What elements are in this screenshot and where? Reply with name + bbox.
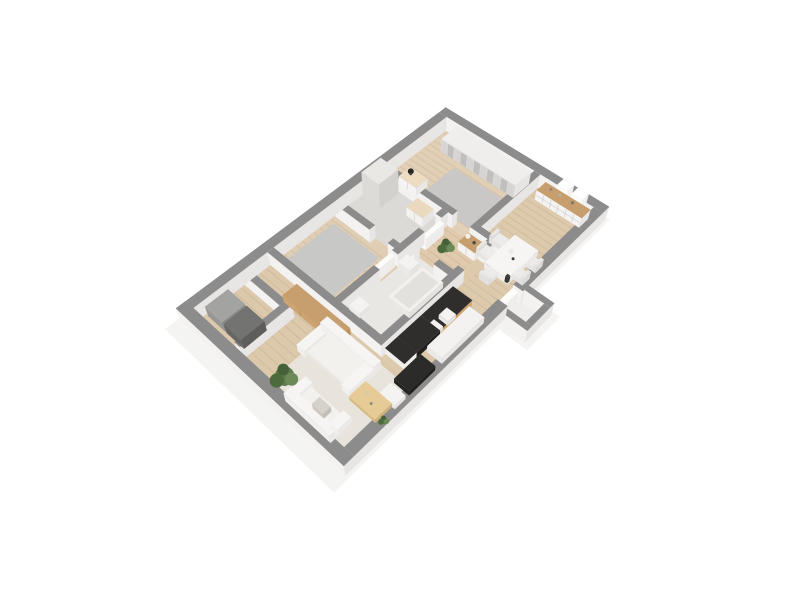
deco-coffee-table-2 [370,402,373,405]
floorplan-3d-render [0,0,800,600]
plant-coffee-small-foliage-icon [384,419,389,424]
plant-dining-foliage-icon [442,239,449,246]
vase-sideboard [472,241,475,244]
plant-coffee-small-foliage-icon [378,419,384,425]
lamp-sideboard [465,234,470,239]
deco-shelf-3 [571,201,574,204]
plant-living-foliage-icon [270,373,284,387]
deco-shelf-1 [549,188,552,191]
plant-coffee-small-foliage-icon [381,415,386,420]
deco-coffee-table-1 [365,391,370,396]
page-background [0,0,800,600]
lamp-bedroom-1-base [409,173,412,176]
plant-living-foliage-icon [285,373,298,386]
bowl-dining-table [509,249,514,254]
plant-dining-foliage-icon [437,245,446,254]
plant-dining-foliage-icon [447,244,455,252]
deco-dining-table [512,257,515,260]
deco-shelf-2 [559,194,562,197]
plant-living-foliage-icon [277,364,289,376]
